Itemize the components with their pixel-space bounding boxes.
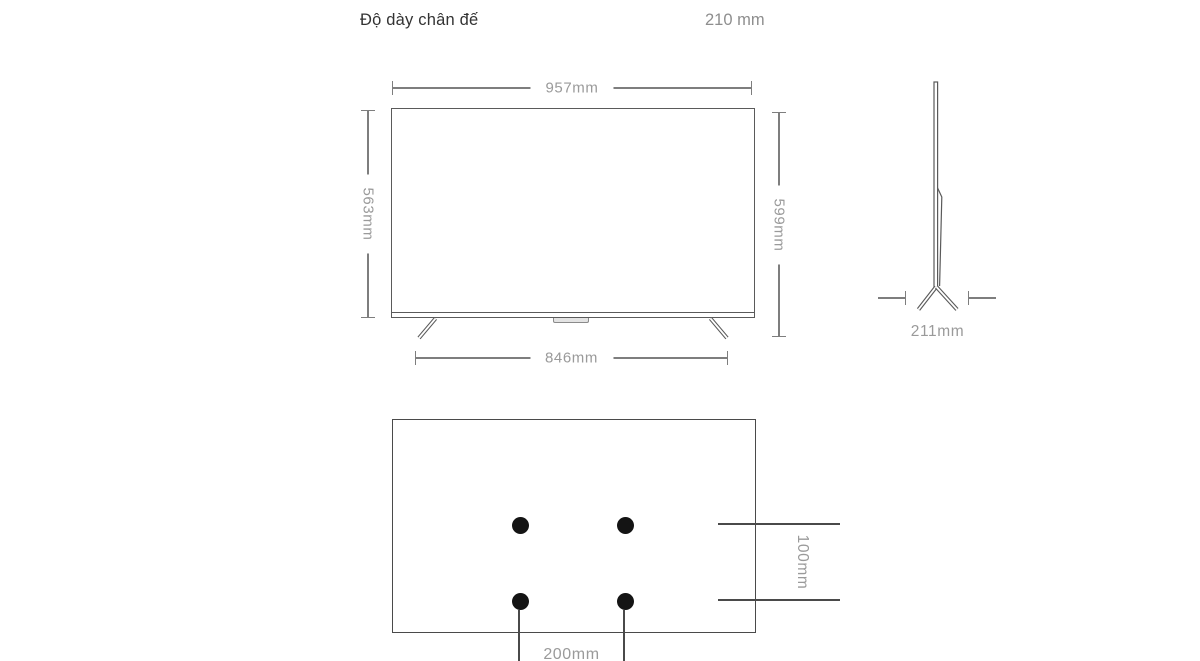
vesa-hole-bottom-left (512, 593, 529, 610)
front-total-height-dimension: 599mm (772, 112, 786, 337)
dimension-tick (751, 81, 752, 95)
vesa-hole-bottom-right (617, 593, 634, 610)
total-height-label: 599mm (771, 185, 788, 264)
vesa-hole-top-right (617, 517, 634, 534)
base-depth-dimension-left (878, 291, 906, 305)
front-width-label: 957mm (530, 80, 613, 97)
vesa-vertical-extension-line-top (718, 523, 840, 525)
dimension-tick (727, 351, 728, 365)
dimension-line (968, 297, 996, 298)
vesa-vertical-spacing-label: 100mm (793, 535, 811, 590)
tv-left-foot (419, 319, 436, 339)
dimension-tick (905, 291, 906, 305)
dimension-tick (415, 351, 416, 365)
tv-bottom-bezel-line (392, 312, 754, 313)
base-depth-label: 211mm (887, 323, 988, 341)
stand-width-dimension: 846mm (415, 351, 728, 365)
tv-side-profile (919, 82, 958, 310)
dimension-tick (772, 112, 786, 113)
dimension-line (878, 297, 906, 298)
spec-row-label: Độ dày chân đế (360, 9, 478, 31)
tv-front-outline (391, 108, 755, 318)
panel-height-label: 563mm (360, 174, 377, 253)
tv-right-foot (711, 319, 728, 339)
spec-row-value: 210 mm (705, 9, 765, 31)
tv-dimensions-spec-page: Độ dày chân đế 210 mm 957mm 563mm 599mm … (0, 0, 1200, 661)
vesa-vertical-extension-line-bottom (718, 599, 840, 601)
dimension-tick (361, 317, 375, 318)
tv-back-outline (392, 419, 756, 633)
base-depth-dimension-right (968, 291, 996, 305)
dimension-tick (392, 81, 393, 95)
vesa-horizontal-spacing-label: 200mm (529, 646, 614, 661)
stand-width-label: 846mm (530, 350, 613, 367)
vesa-horizontal-extension-line-right (623, 610, 625, 661)
front-width-dimension: 957mm (392, 81, 752, 95)
vesa-horizontal-extension-line-left (518, 610, 520, 661)
tv-center-bump (553, 318, 589, 323)
dimension-tick (361, 110, 375, 111)
vesa-hole-top-left (512, 517, 529, 534)
dimension-tick (772, 336, 786, 337)
dimension-tick (968, 291, 969, 305)
front-panel-height-dimension: 563mm (361, 110, 375, 318)
